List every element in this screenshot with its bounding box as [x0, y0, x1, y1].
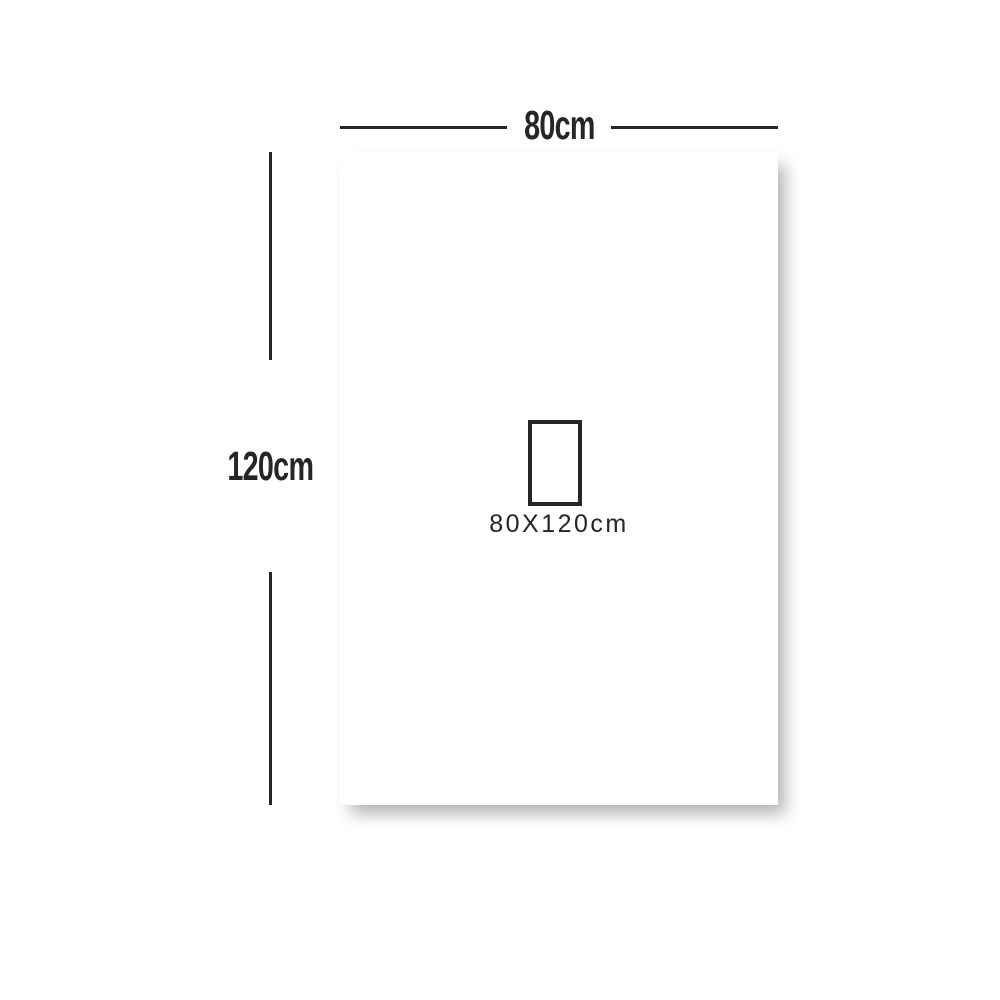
- size-reference-rectangle: [528, 420, 582, 506]
- size-label: 80X120cm: [340, 510, 778, 539]
- height-dimension-line-top: [269, 152, 272, 360]
- width-dimension-line-left: [340, 126, 507, 129]
- height-dimension-line-bottom: [269, 572, 272, 805]
- height-dimension: 120cm: [200, 152, 340, 805]
- width-dimension: 80cm: [340, 104, 778, 150]
- height-label-wrap: 120cm: [209, 360, 332, 572]
- width-label: 80cm: [524, 105, 595, 150]
- width-dimension-line-right: [611, 126, 778, 129]
- dimension-diagram: 80cm 120cm 80X120cm: [0, 0, 1000, 1000]
- product-panel: 80X120cm: [340, 152, 778, 805]
- height-label: 120cm: [227, 446, 313, 487]
